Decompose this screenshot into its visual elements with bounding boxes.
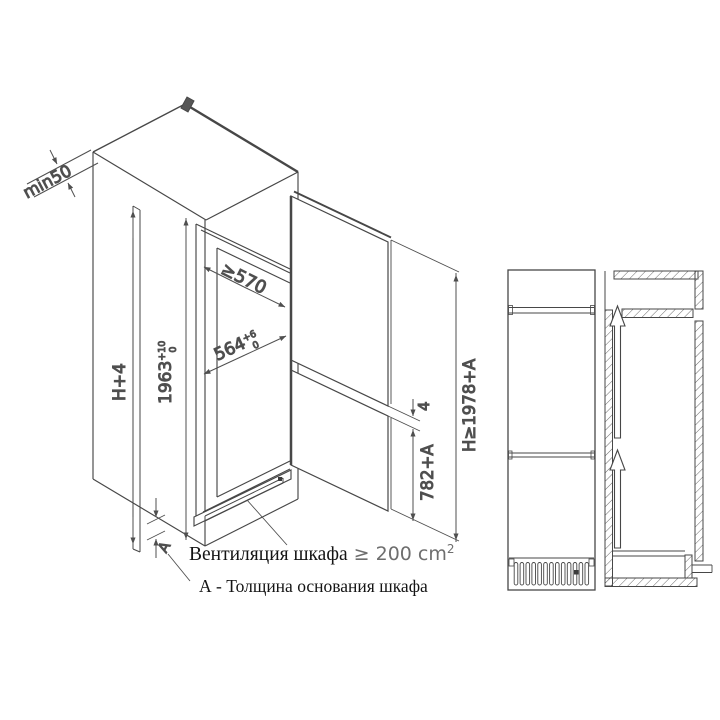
- ventilation-note: Вентиляция шкафа ≥ 200 cm2: [189, 542, 455, 565]
- door-gap-label: 4: [415, 401, 433, 411]
- depth-label: ≥570: [217, 259, 269, 298]
- base-vent-slot: [194, 470, 291, 526]
- door-panels: [291, 192, 391, 512]
- section-view: [605, 271, 712, 587]
- dimension-niche-height: 1963+100: [156, 218, 186, 540]
- dimension-depth: ≥570: [204, 259, 285, 307]
- vent-grille: [509, 558, 594, 585]
- top-bracket: [181, 97, 194, 112]
- dimension-width: 564+60: [204, 328, 286, 374]
- dimension-base-thickness: A: [147, 498, 190, 581]
- upper-door-panel: [291, 196, 388, 406]
- dimension-lower-door: 782+A: [413, 429, 437, 521]
- width-label: 564+60: [211, 328, 263, 368]
- dimension-door-gap: 4: [388, 399, 433, 431]
- base-note: А - Толщина основания шкафа: [199, 576, 428, 596]
- min-clearance-label: min50: [20, 161, 75, 202]
- h-plus-4-label: H+4: [110, 363, 130, 401]
- dimension-h-plus-4: H+4: [110, 211, 133, 544]
- dimension-min50: min50: [20, 150, 98, 202]
- lower-door-label: 782+A: [418, 444, 437, 501]
- dimensions: min50 H+4 1963+100 ≥570: [20, 150, 479, 581]
- total-height-label: H≥1978+A: [460, 358, 479, 452]
- niche-height-label: 1963+100: [156, 341, 179, 404]
- vent-leader-line: [247, 500, 287, 545]
- base-thickness-label: A: [155, 539, 174, 555]
- installation-diagram: min50 H+4 1963+100 ≥570: [0, 0, 720, 720]
- installation-diagram-page: min50 H+4 1963+100 ≥570: [0, 0, 720, 720]
- front-view: [508, 270, 595, 590]
